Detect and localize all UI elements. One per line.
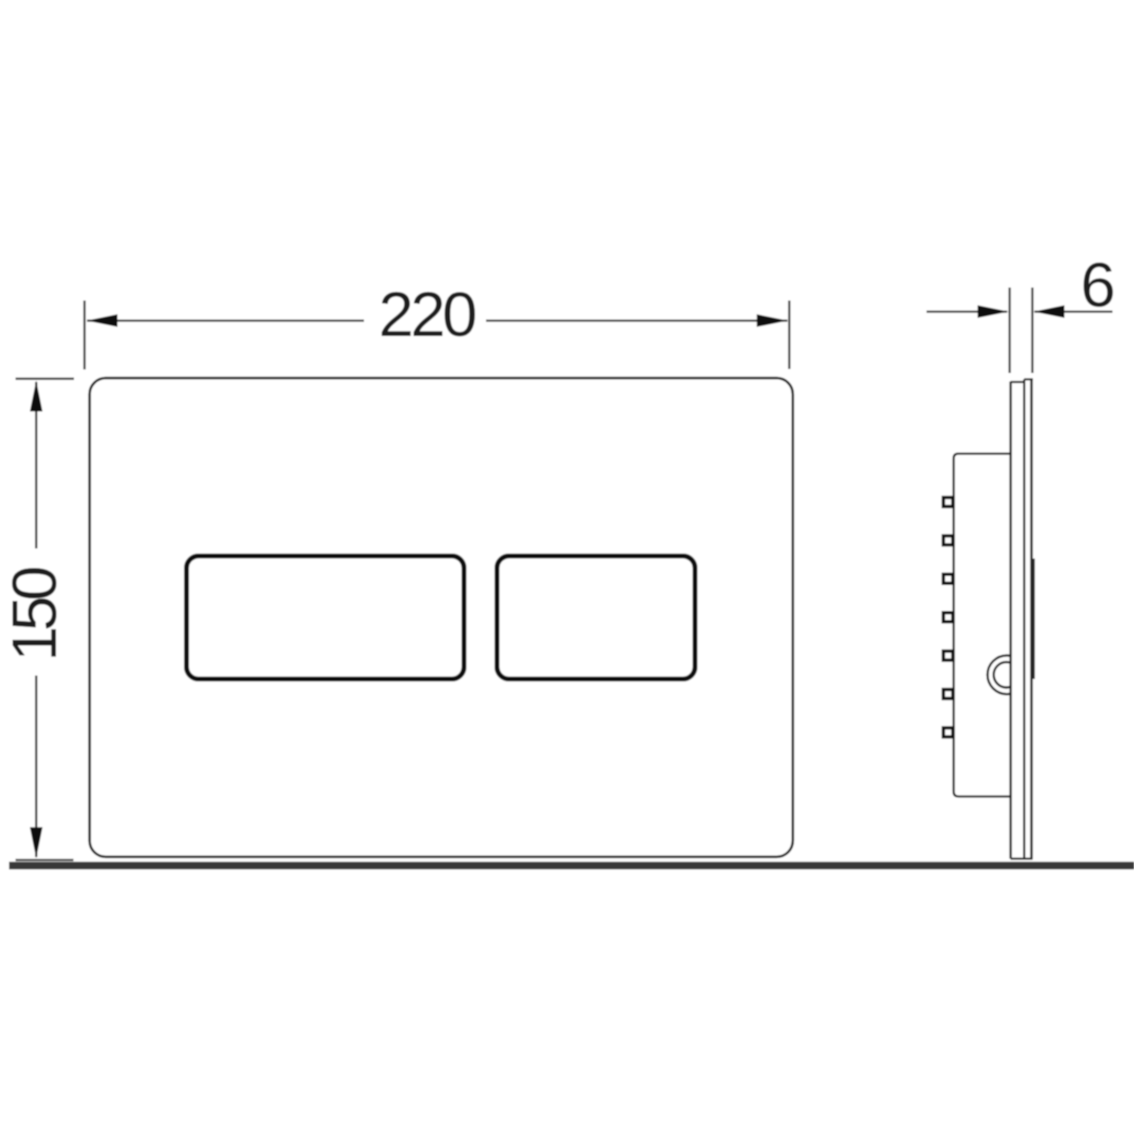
svg-text:220: 220 bbox=[379, 280, 478, 350]
svg-text:150: 150 bbox=[0, 566, 70, 662]
svg-text:6: 6 bbox=[1080, 250, 1115, 320]
